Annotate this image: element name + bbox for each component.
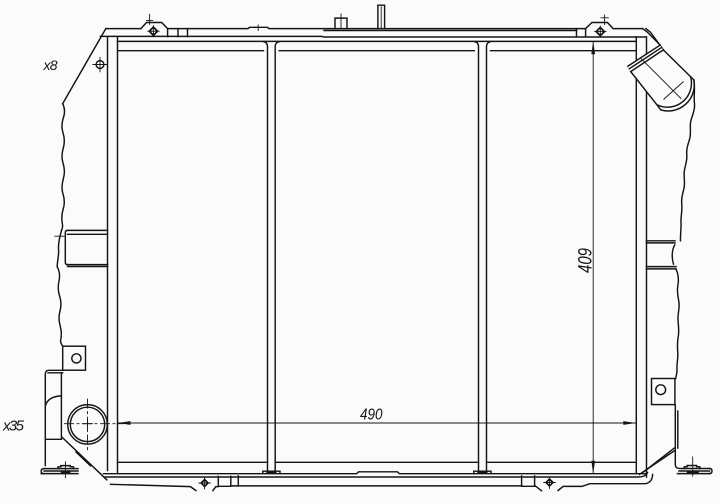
svg-text:x35: x35 — [2, 418, 25, 435]
svg-text:409: 409 — [576, 248, 597, 273]
svg-text:490: 490 — [360, 407, 383, 424]
svg-text:x8: x8 — [43, 57, 58, 73]
